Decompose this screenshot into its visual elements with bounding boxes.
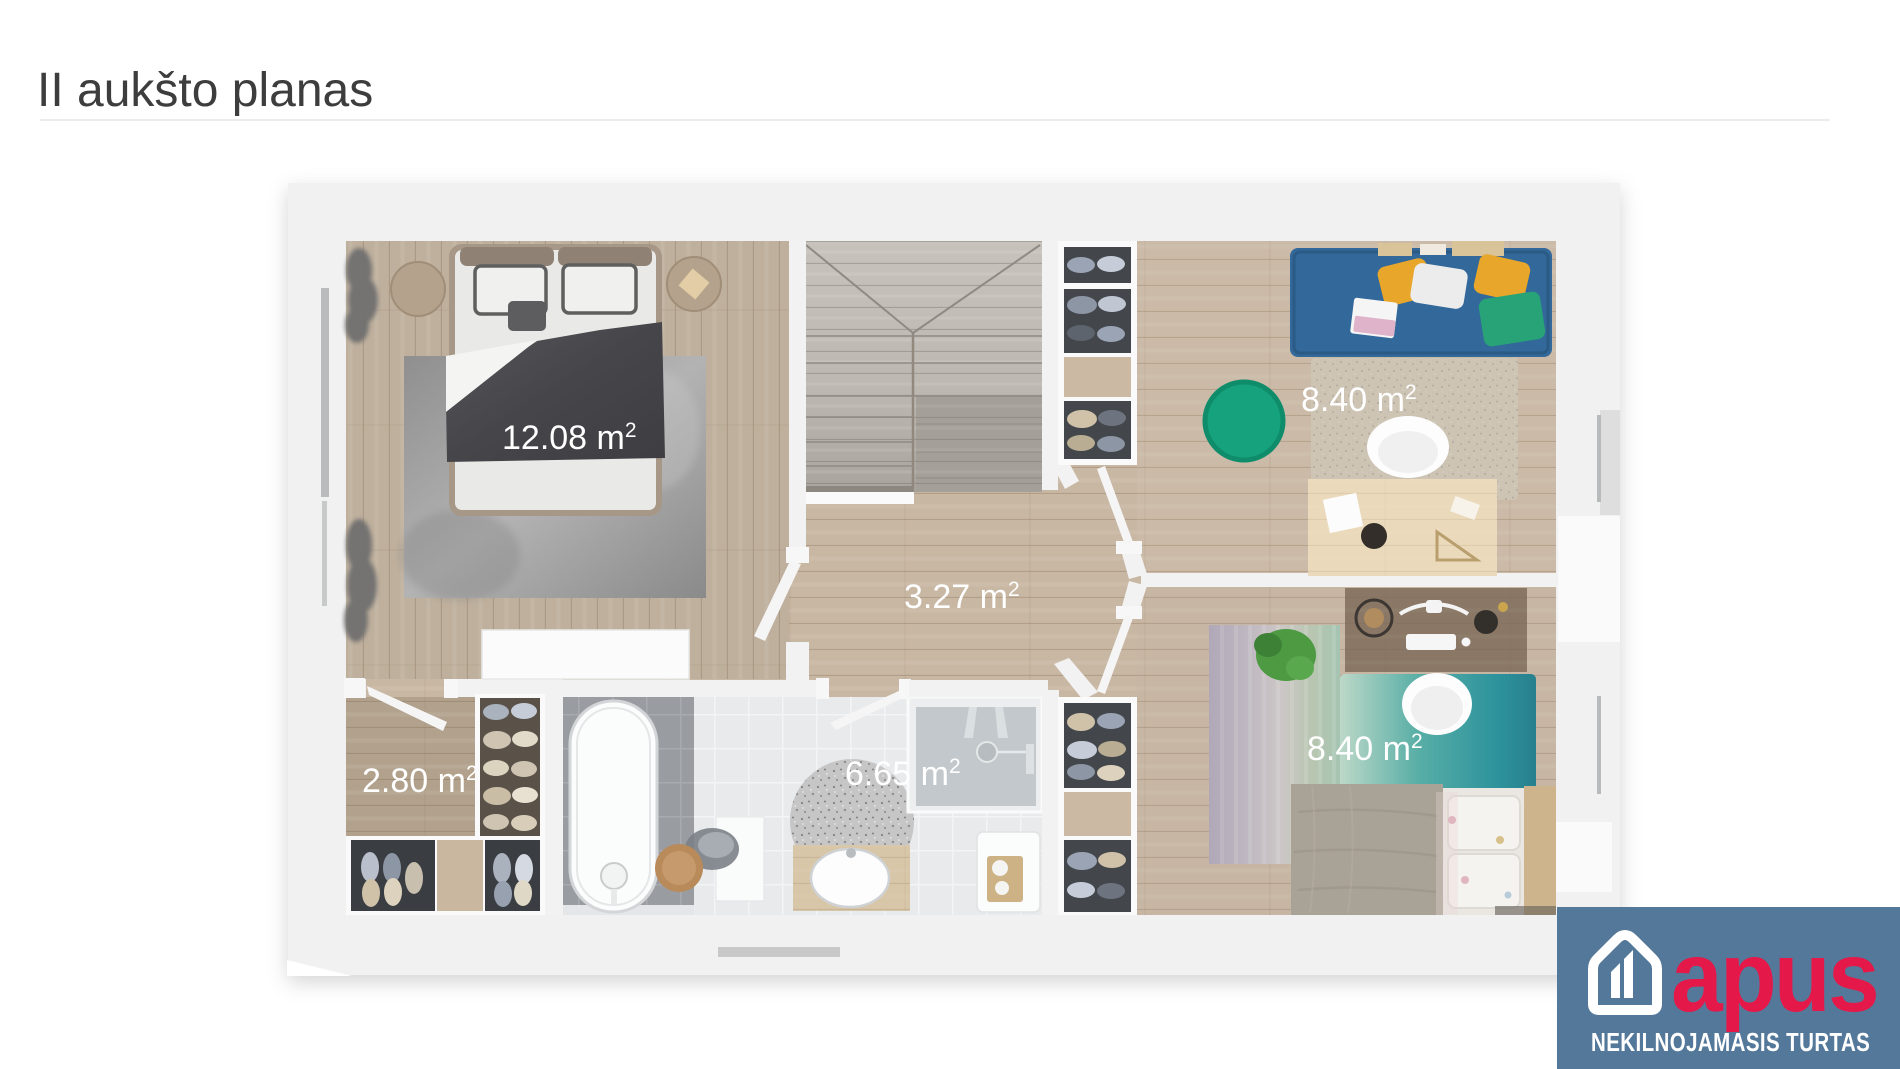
svg-text:apus: apus	[1671, 922, 1877, 1033]
svg-text:II aukšto planas: II aukšto planas	[37, 64, 373, 117]
svg-text:8.40 m2: 8.40 m2	[1301, 381, 1417, 419]
svg-text:NEKILNOJAMASIS TURTAS: NEKILNOJAMASIS TURTAS	[1591, 1028, 1870, 1057]
svg-text:8.40 m2: 8.40 m2	[1307, 730, 1423, 768]
svg-text:2.80 m2: 2.80 m2	[362, 762, 478, 800]
svg-text:3.27 m2: 3.27 m2	[904, 578, 1020, 616]
svg-text:6.65 m2: 6.65 m2	[845, 755, 961, 793]
svg-text:12.08 m2: 12.08 m2	[502, 419, 637, 457]
